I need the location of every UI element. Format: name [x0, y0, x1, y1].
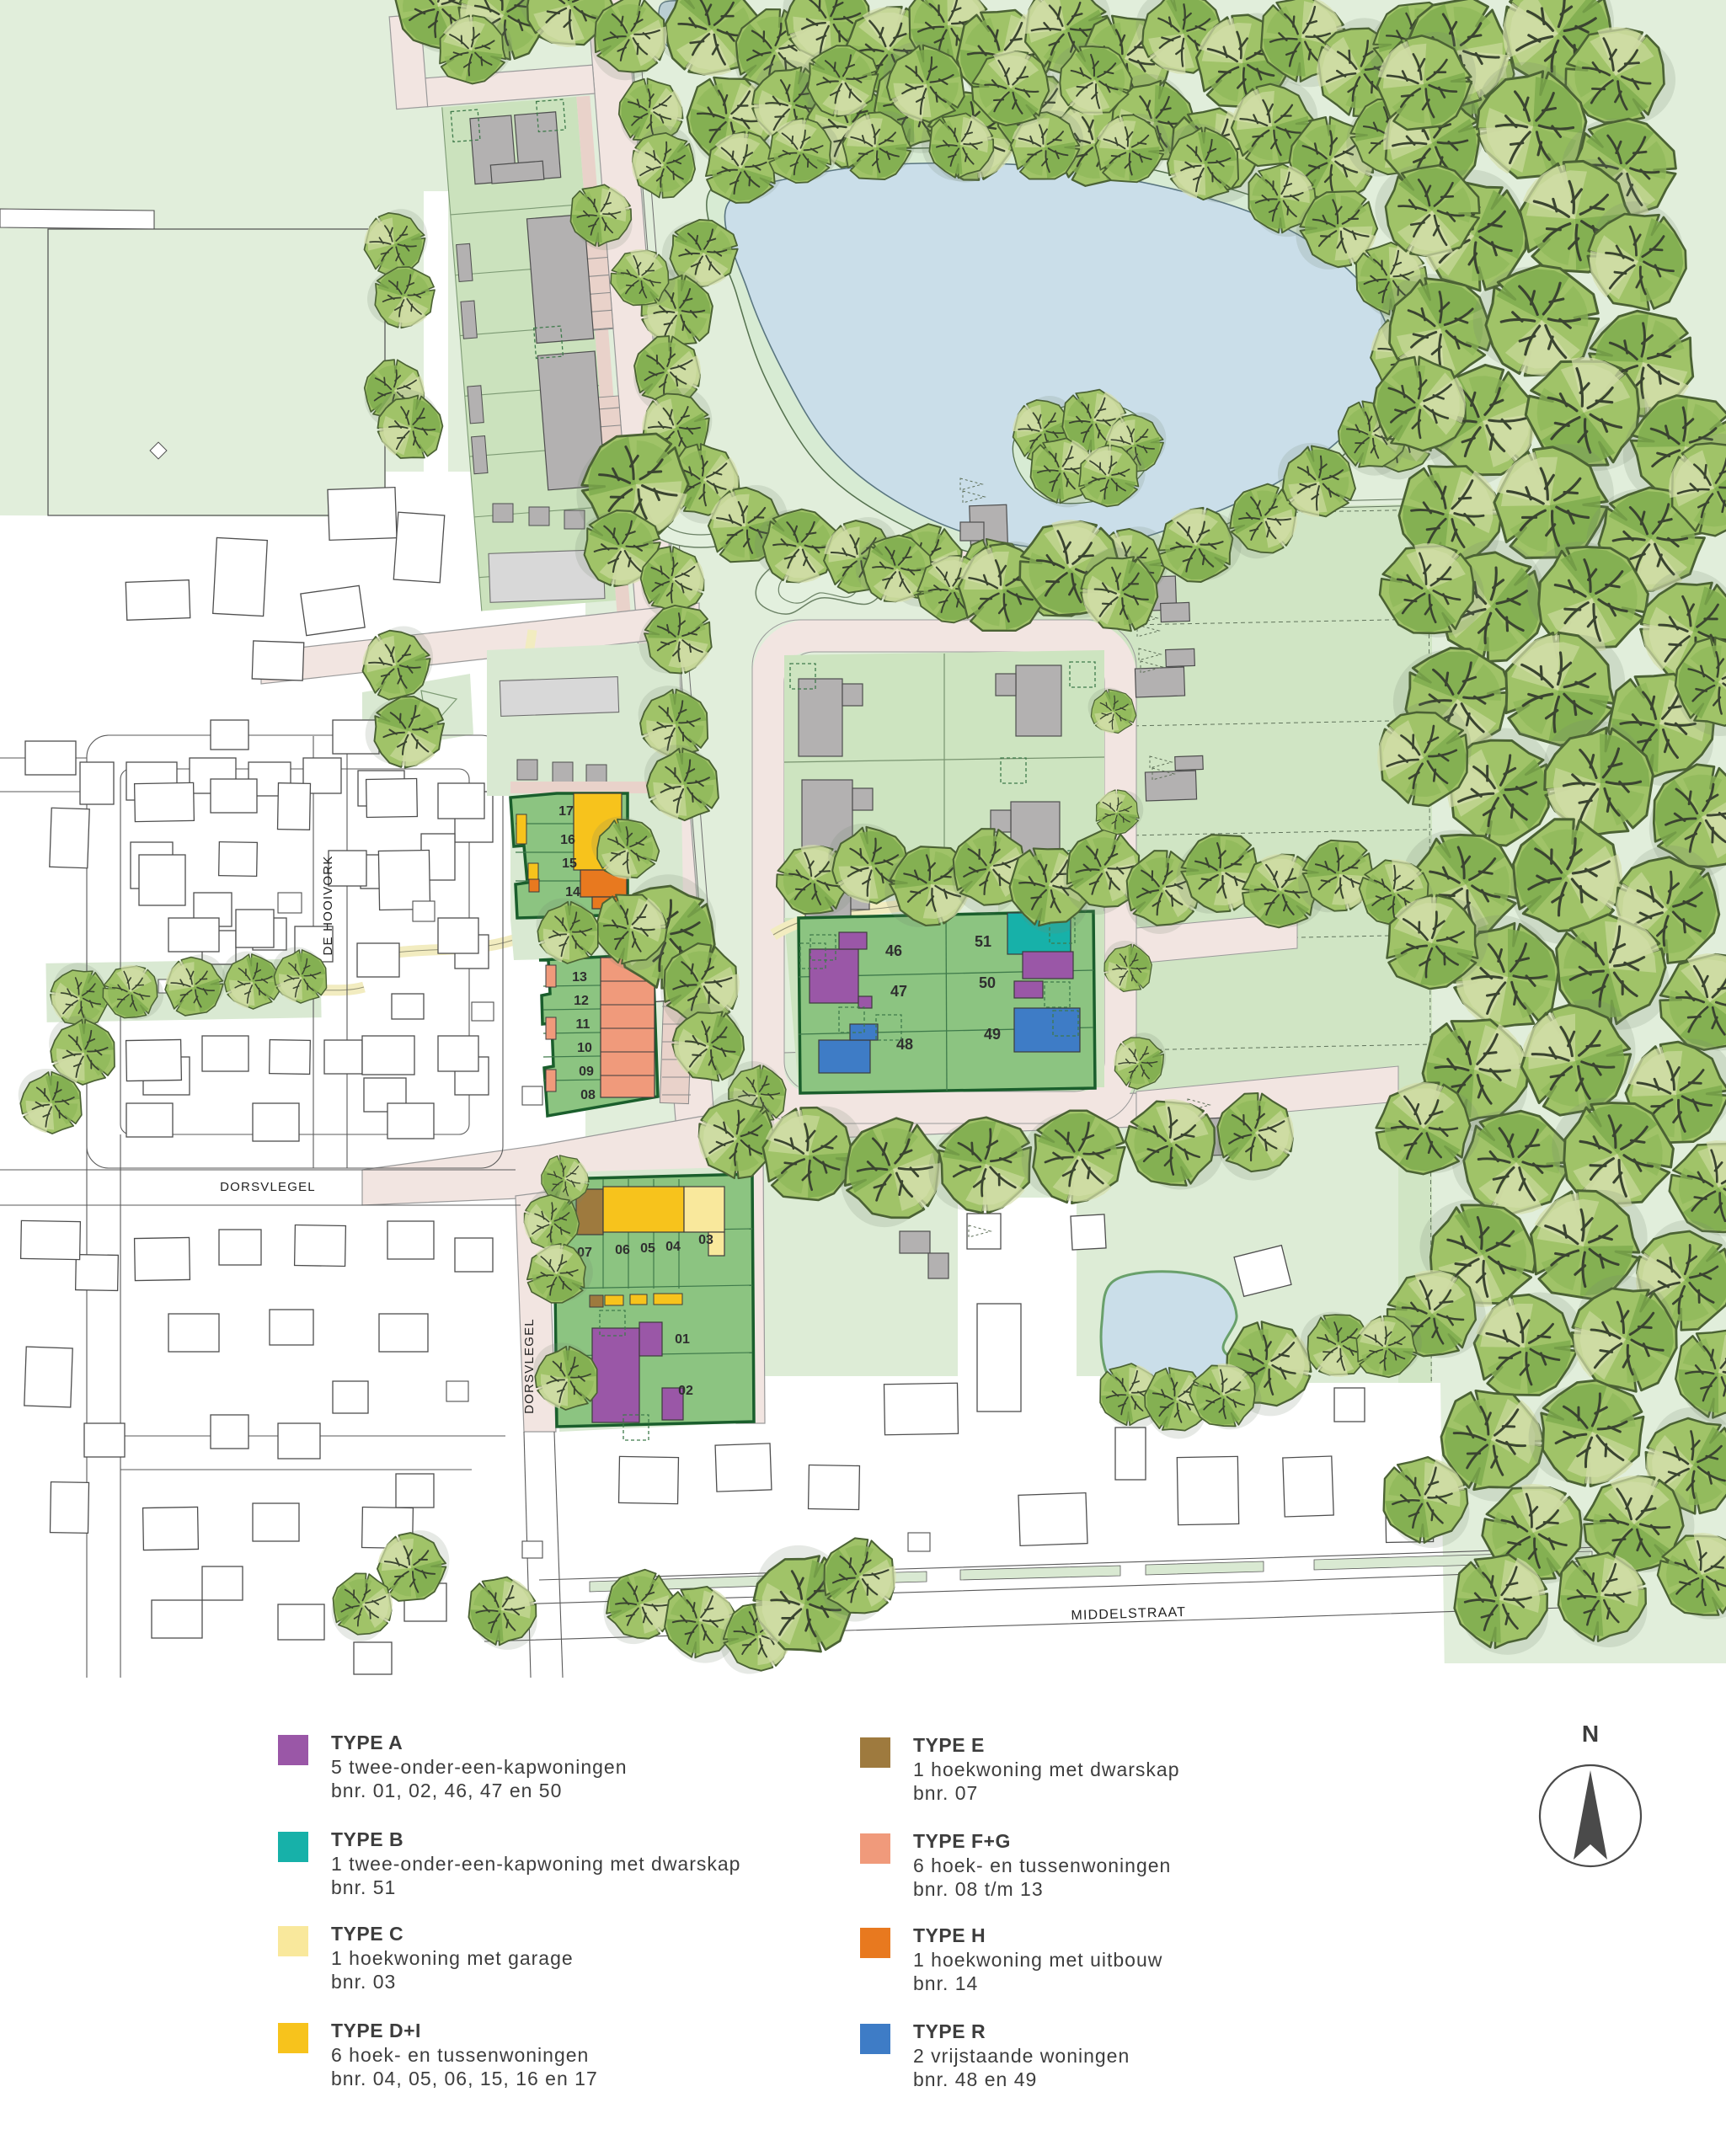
svg-text:6 hoek- en tussenwoningen: 6 hoek- en tussenwoningen: [331, 2044, 589, 2066]
svg-text:46: 46: [885, 942, 902, 959]
svg-text:1 hoekwoning met uitbouw: 1 hoekwoning met uitbouw: [913, 1949, 1162, 1971]
svg-text:08: 08: [580, 1088, 596, 1102]
svg-text:05: 05: [640, 1241, 655, 1256]
svg-text:TYPE D+I: TYPE D+I: [331, 2020, 421, 2041]
svg-text:bnr. 04, 05, 06, 15, 16 en 17: bnr. 04, 05, 06, 15, 16 en 17: [331, 2068, 598, 2089]
svg-text:06: 06: [615, 1243, 630, 1257]
svg-text:14: 14: [565, 885, 580, 899]
svg-text:6 hoek- en tussenwoningen: 6 hoek- en tussenwoningen: [913, 1854, 1171, 1876]
svg-text:bnr. 51: bnr. 51: [331, 1876, 396, 1898]
svg-text:TYPE C: TYPE C: [331, 1923, 403, 1945]
svg-text:1 hoekwoning met dwarskap: 1 hoekwoning met dwarskap: [913, 1758, 1180, 1780]
svg-text:16: 16: [560, 833, 575, 847]
svg-text:02: 02: [678, 1384, 693, 1398]
svg-text:2 vrijstaande woningen: 2 vrijstaande woningen: [913, 2045, 1130, 2067]
svg-text:15: 15: [562, 857, 577, 871]
svg-text:03: 03: [698, 1233, 713, 1247]
svg-text:DORSVLEGEL: DORSVLEGEL: [220, 1180, 316, 1194]
svg-text:N: N: [1582, 1721, 1599, 1747]
svg-text:bnr. 08 t/m 13: bnr. 08 t/m 13: [913, 1878, 1044, 1900]
svg-text:13: 13: [572, 970, 587, 985]
svg-text:12: 12: [574, 994, 589, 1008]
svg-text:01: 01: [675, 1332, 690, 1347]
svg-text:17: 17: [558, 804, 574, 819]
svg-text:1 hoekwoning met garage: 1 hoekwoning met garage: [331, 1947, 574, 1969]
svg-text:10: 10: [577, 1041, 592, 1055]
svg-text:bnr. 48 en 49: bnr. 48 en 49: [913, 2068, 1037, 2090]
svg-text:TYPE H: TYPE H: [913, 1924, 986, 1946]
svg-text:TYPE A: TYPE A: [331, 1732, 403, 1753]
svg-text:49: 49: [984, 1026, 1001, 1043]
svg-text:TYPE E: TYPE E: [913, 1734, 985, 1756]
svg-text:1 twee-onder-een-kapwoning met: 1 twee-onder-een-kapwoning met dwarskap: [331, 1853, 740, 1875]
svg-text:47: 47: [890, 983, 907, 1000]
svg-text:50: 50: [979, 974, 996, 991]
svg-text:TYPE R: TYPE R: [913, 2020, 986, 2042]
svg-text:bnr. 07: bnr. 07: [913, 1782, 978, 1804]
svg-text:48: 48: [896, 1036, 913, 1053]
svg-text:09: 09: [579, 1065, 594, 1079]
svg-text:bnr. 01, 02, 46, 47 en 50: bnr. 01, 02, 46, 47 en 50: [331, 1780, 562, 1801]
svg-text:5 twee-onder-een-kapwoningen: 5 twee-onder-een-kapwoningen: [331, 1756, 628, 1778]
svg-text:51: 51: [975, 933, 991, 950]
svg-text:bnr. 03: bnr. 03: [331, 1971, 396, 1993]
svg-text:TYPE B: TYPE B: [331, 1828, 403, 1850]
svg-text:bnr. 14: bnr. 14: [913, 1972, 978, 1994]
svg-text:TYPE F+G: TYPE F+G: [913, 1830, 1011, 1852]
svg-text:DE HOOIVORK: DE HOOIVORK: [321, 855, 335, 955]
svg-text:04: 04: [665, 1240, 681, 1254]
svg-text:11: 11: [576, 1017, 590, 1032]
